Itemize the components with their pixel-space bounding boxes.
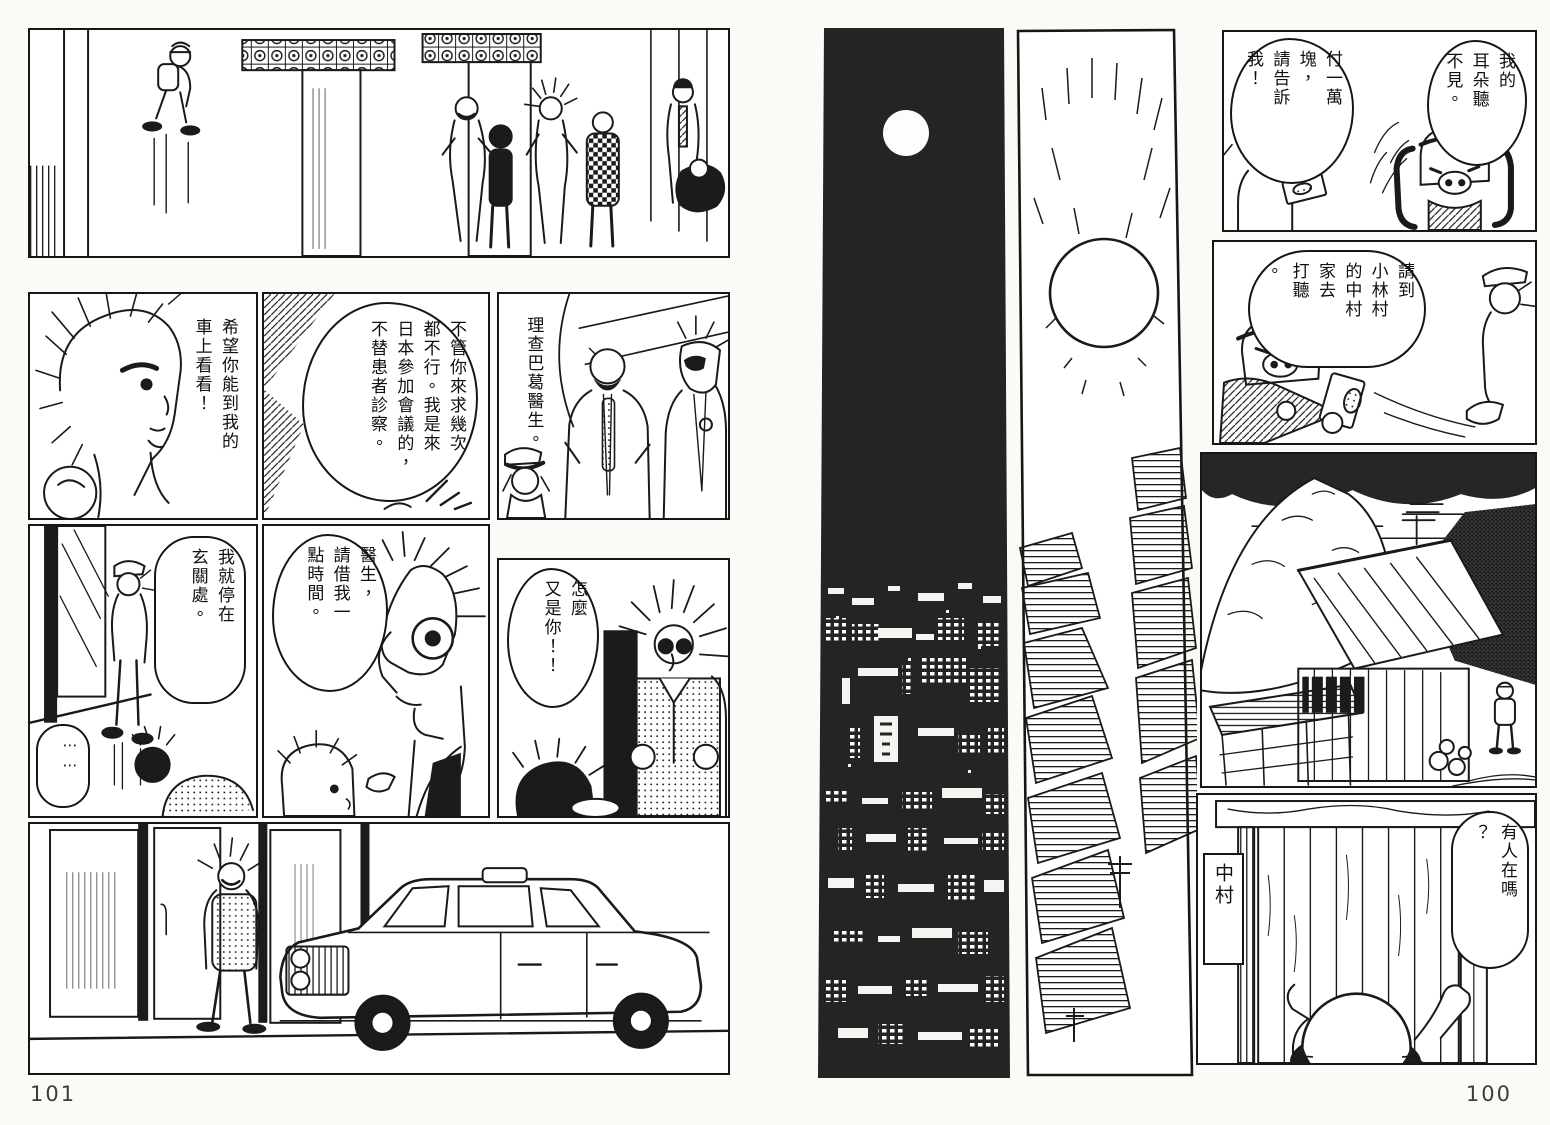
panel-car-scene [28, 822, 730, 1075]
moon [883, 110, 929, 156]
wild-hair-doctor [614, 580, 729, 816]
tall-man [664, 316, 728, 518]
page-number-right: 100 [1466, 1082, 1512, 1106]
doctor-profile [379, 532, 485, 816]
panel-directions: 請到 小林村 的中村 家去 打聽 。 [1212, 240, 1537, 445]
visitor-figure [1489, 683, 1521, 755]
speech-silence: ⋯⋯ [36, 724, 90, 808]
panel-entrance: 我就停在 玄關處。 ⋯⋯ [28, 524, 258, 818]
speech-doctor-name: 理查巴葛醫生。 [513, 306, 553, 506]
panel-lobby-scene [28, 28, 730, 258]
speech-pay: 付一萬 塊， 請告訴 我！ [1230, 38, 1354, 184]
doctor-in-crowd [525, 78, 577, 243]
panel-farmhouse [1200, 452, 1537, 788]
panel-pay-deaf: 我的 耳朵聽 不見。 付一萬 塊， 請告訴 我！ [1222, 30, 1537, 232]
car-art [30, 824, 728, 1073]
page-number-left: 101 [30, 1082, 76, 1106]
boy-head [278, 731, 356, 816]
farmhouse-art [1202, 454, 1535, 786]
speech-anyone-home: 有人在嗎 ？ [1451, 811, 1529, 969]
night-sky [818, 28, 1010, 1078]
speech-borrow-time: 醫生， 請借我一 點時間。 [272, 534, 388, 692]
panel-you-again: 怎麼 又是你！！ [497, 558, 730, 818]
panel-boy-plea: 希望你能到我的 車上看看！ [28, 292, 258, 520]
boy-head-back [135, 748, 169, 782]
speech-deaf: 我的 耳朵聽 不見。 [1427, 40, 1527, 166]
pointing-hand [1467, 402, 1503, 424]
speech-entrance: 我就停在 玄關處。 [154, 536, 246, 704]
speech-you-again: 怎麼 又是你！！ [507, 568, 599, 708]
speech-refusal: 不管你來求幾次 都不行。我是來 日本參加會議的， 不替患者診察。 [302, 302, 478, 502]
panel-night-city [818, 28, 1010, 1078]
walking-figure [142, 43, 200, 213]
panel-borrow-time: 醫生， 請借我一 點時間。 [262, 524, 490, 818]
limousine [280, 868, 709, 1050]
sun [1050, 239, 1158, 347]
speech-directions: 請到 小林村 的中村 家去 打聽 。 [1248, 250, 1426, 368]
panel-sun-street [1012, 28, 1197, 1078]
mustached-man [565, 348, 649, 518]
night-art [818, 28, 1010, 1078]
neon-sign [874, 716, 898, 762]
capped-listener [1467, 268, 1535, 424]
sun-street-art [1012, 28, 1197, 1078]
nakamura-sign: 中村 [1203, 853, 1244, 965]
outstretched-hand [366, 773, 394, 791]
motion-curves [1375, 393, 1475, 437]
panel-nakamura-door: 中村 有人在嗎 ？ [1196, 793, 1537, 1065]
night-clouds [1202, 454, 1535, 506]
manga-spread: 希望你能到我的 車上看看！ 不管你來求幾次 都不行。我是來 日本參加會議的， 不… [0, 0, 1550, 1125]
panel-doctor-intro: 理查巴葛醫生。 [497, 292, 730, 520]
panel-refusal: 不管你來求幾次 都不行。我是來 日本參加會議的， 不替患者診察。 [262, 292, 490, 520]
lobby-art [30, 30, 728, 256]
speech-boy-plea: 希望你能到我的 車上看看！ [181, 308, 248, 504]
